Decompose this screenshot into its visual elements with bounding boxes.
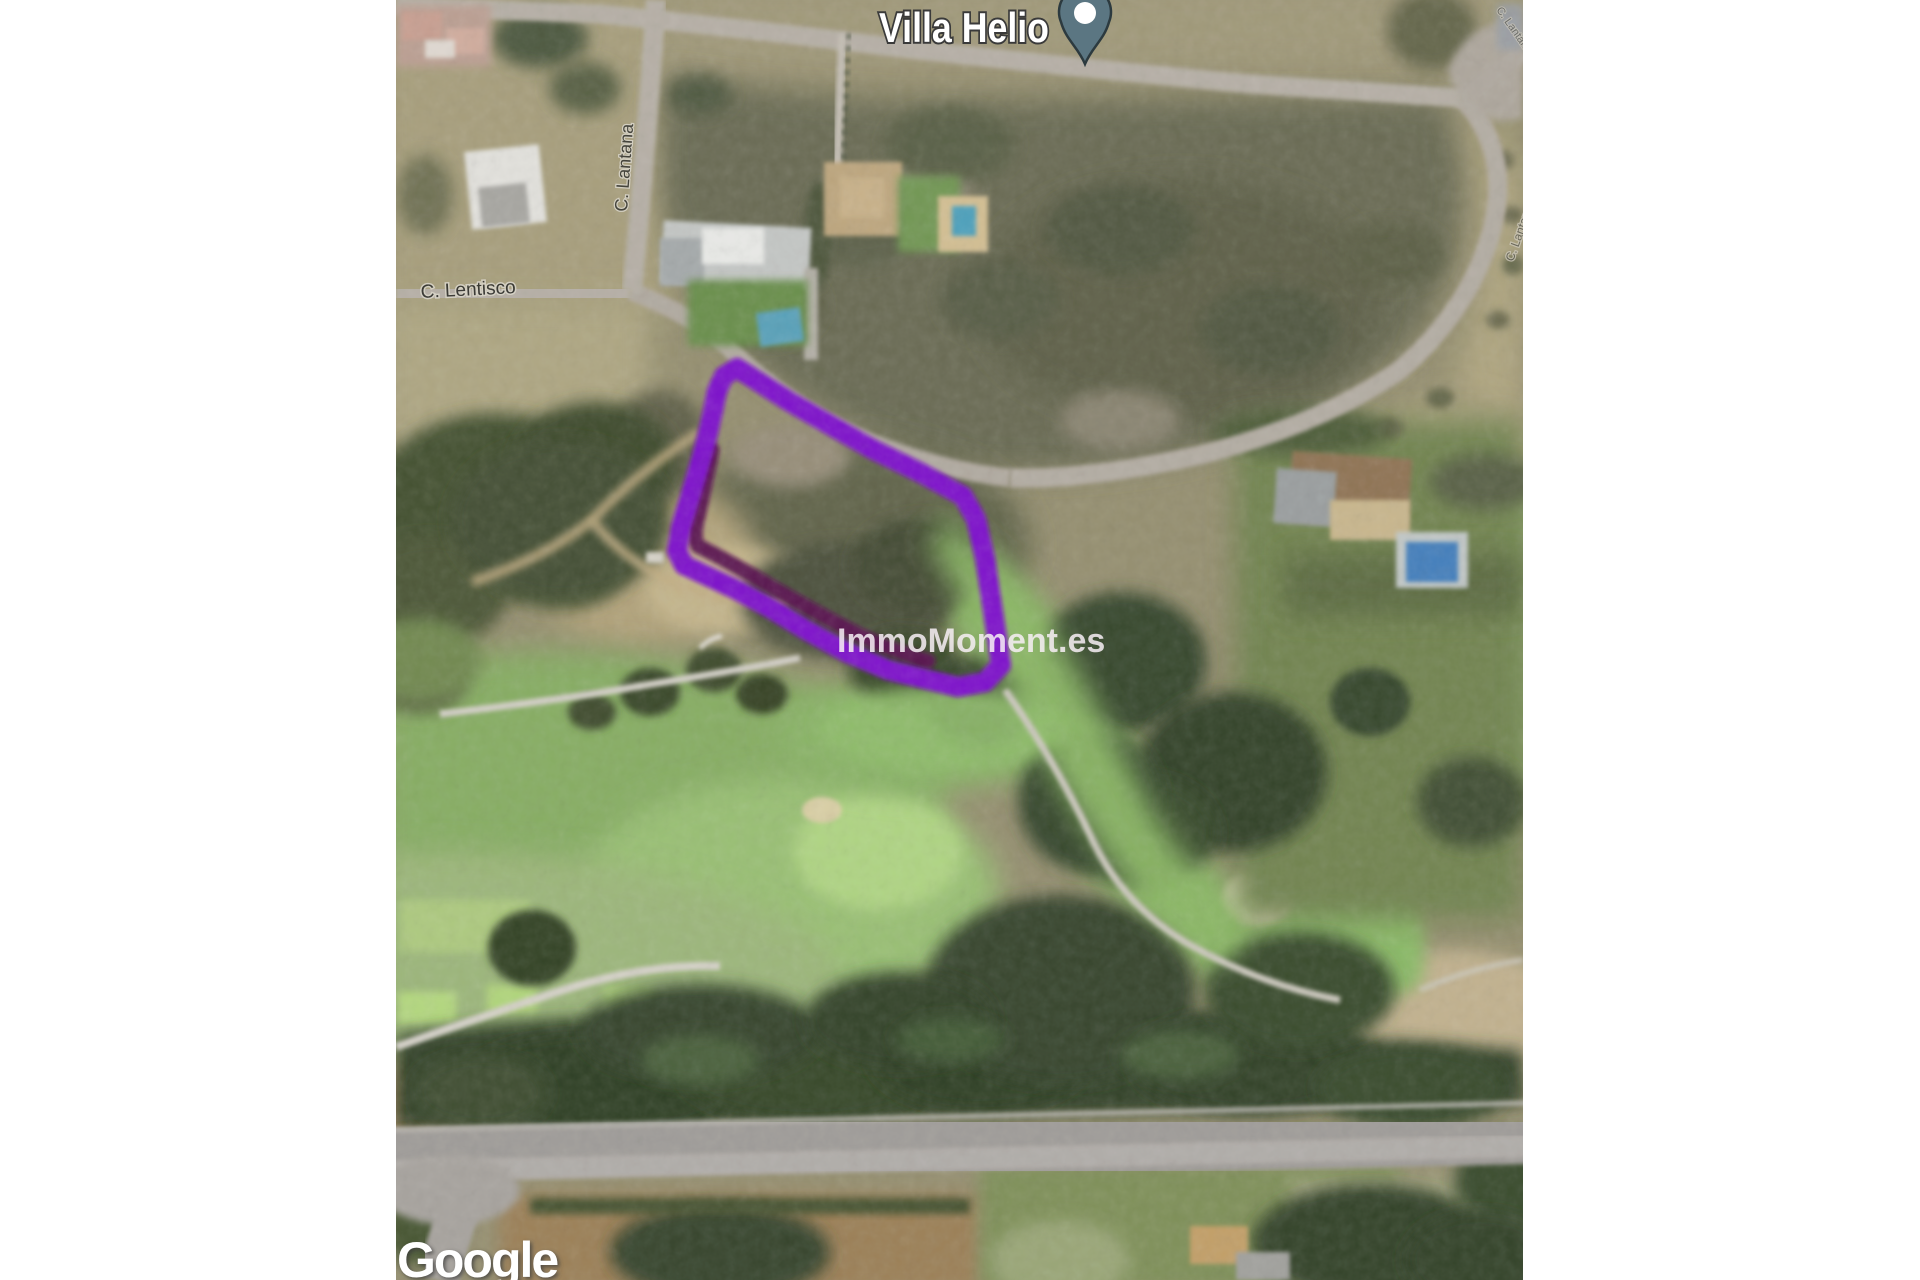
svg-text:Google: Google	[397, 1232, 558, 1280]
svg-text:Villa Helio: Villa Helio	[879, 4, 1049, 51]
svg-text:ImmoMoment.es: ImmoMoment.es	[837, 622, 1105, 660]
